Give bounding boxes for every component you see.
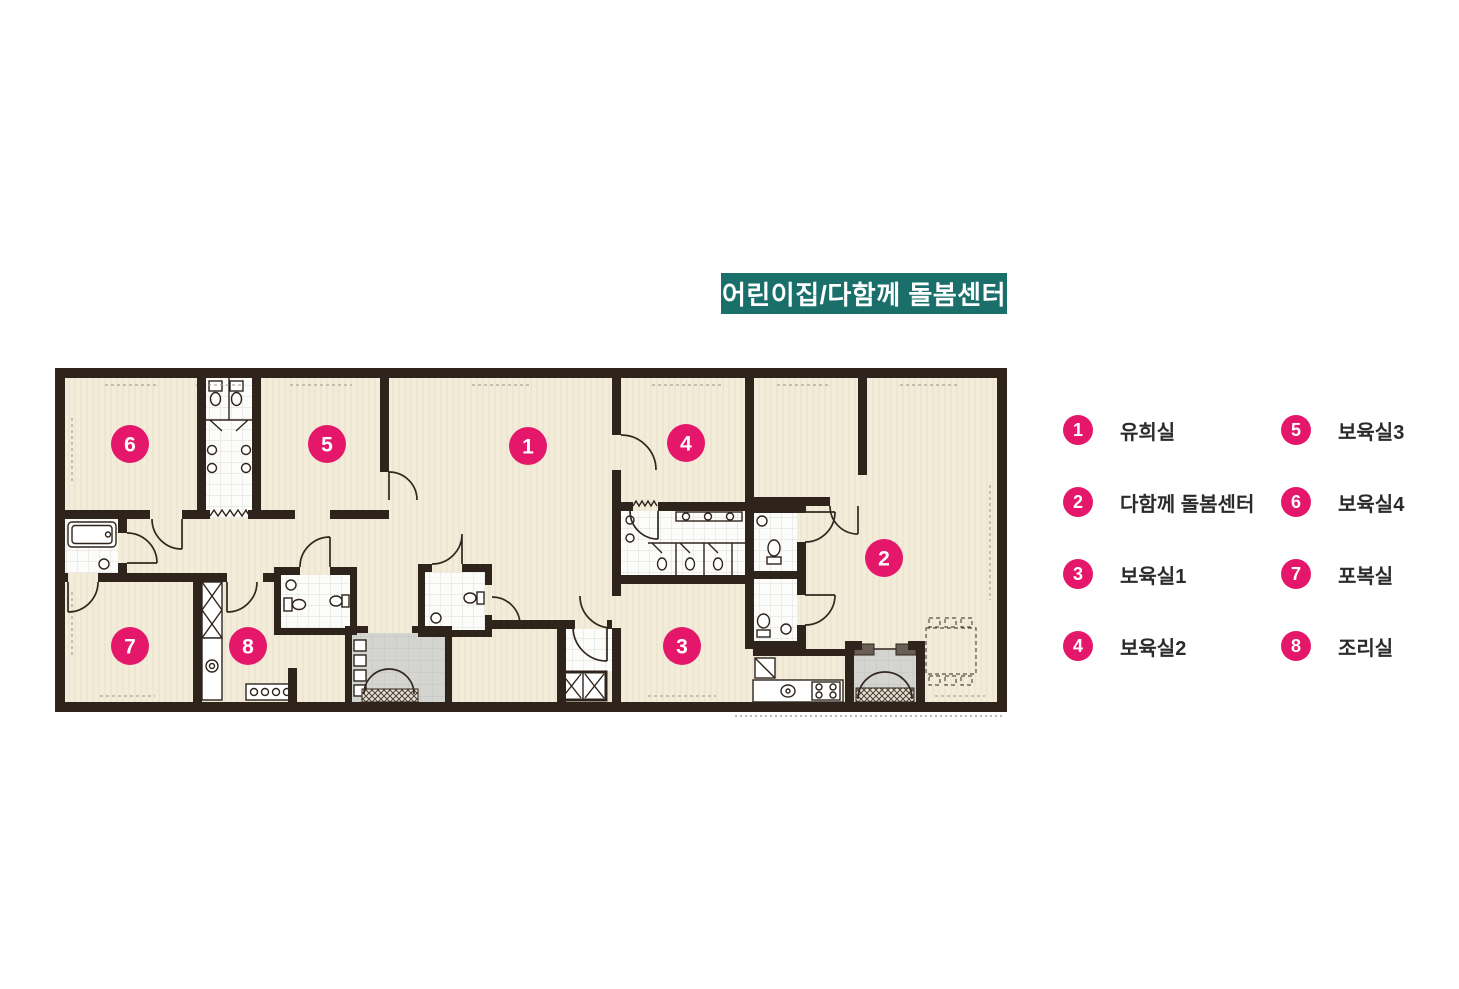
legend-label-3: 보육실1	[1120, 560, 1186, 589]
room-marker-8: 8	[229, 627, 267, 665]
page: 어린이집/다함께 돌봄센터	[0, 0, 1459, 989]
svg-text:3: 3	[676, 636, 688, 659]
legend-label-1: 유희실	[1120, 416, 1175, 445]
legend-badge-6: 6	[1281, 487, 1311, 517]
svg-text:8: 8	[242, 636, 254, 659]
page-title: 어린이집/다함께 돌봄센터	[722, 275, 1006, 312]
legend-item-8: 8 조리실	[1281, 631, 1404, 661]
legend-badge-1: 1	[1063, 415, 1093, 445]
legend-item-3: 3 보육실1	[1063, 559, 1254, 589]
legend-badge-2: 2	[1063, 487, 1093, 517]
room-marker-7: 7	[111, 627, 149, 665]
room-marker-6: 6	[111, 425, 149, 463]
room-marker-1: 1	[509, 427, 547, 465]
room-marker-4: 4	[667, 424, 705, 462]
legend-badge-5: 5	[1281, 415, 1311, 445]
legend-item-1: 1 유희실	[1063, 415, 1254, 445]
room-marker-3: 3	[663, 627, 701, 665]
legend-label-7: 포복실	[1338, 560, 1393, 589]
legend-label-4: 보육실2	[1120, 632, 1186, 661]
svg-text:4: 4	[680, 433, 692, 456]
legend-badge-3: 3	[1063, 559, 1093, 589]
title-banner: 어린이집/다함께 돌봄센터	[721, 273, 1007, 314]
legend-label-6: 보육실4	[1338, 488, 1404, 517]
room-marker-2: 2	[865, 539, 903, 577]
legend-item-7: 7 포복실	[1281, 559, 1404, 589]
legend-item-2: 2 다함께 돌봄센터	[1063, 487, 1254, 517]
legend-label-2: 다함께 돌봄센터	[1120, 488, 1254, 517]
legend-item-4: 4 보육실2	[1063, 631, 1254, 661]
legend-badge-4: 4	[1063, 631, 1093, 661]
legend-item-5: 5 보육실3	[1281, 415, 1404, 445]
svg-text:5: 5	[321, 434, 333, 457]
legend-label-5: 보육실3	[1338, 416, 1404, 445]
svg-text:7: 7	[124, 636, 136, 659]
svg-text:1: 1	[522, 436, 534, 459]
legend-item-6: 6 보육실4	[1281, 487, 1404, 517]
legend-column-1: 1 유희실 2 다함께 돌봄센터 3 보육실1 4 보육실2	[1063, 415, 1254, 661]
floor-plan: 1 2 3 4 5 6 7 8	[50, 360, 1015, 720]
svg-text:6: 6	[124, 434, 136, 457]
legend-label-8: 조리실	[1338, 632, 1393, 661]
legend-column-2: 5 보육실3 6 보육실4 7 포복실 8 조리실	[1281, 415, 1404, 661]
svg-text:2: 2	[878, 548, 890, 571]
room-marker-5: 5	[308, 425, 346, 463]
legend-badge-8: 8	[1281, 631, 1311, 661]
legend-badge-7: 7	[1281, 559, 1311, 589]
